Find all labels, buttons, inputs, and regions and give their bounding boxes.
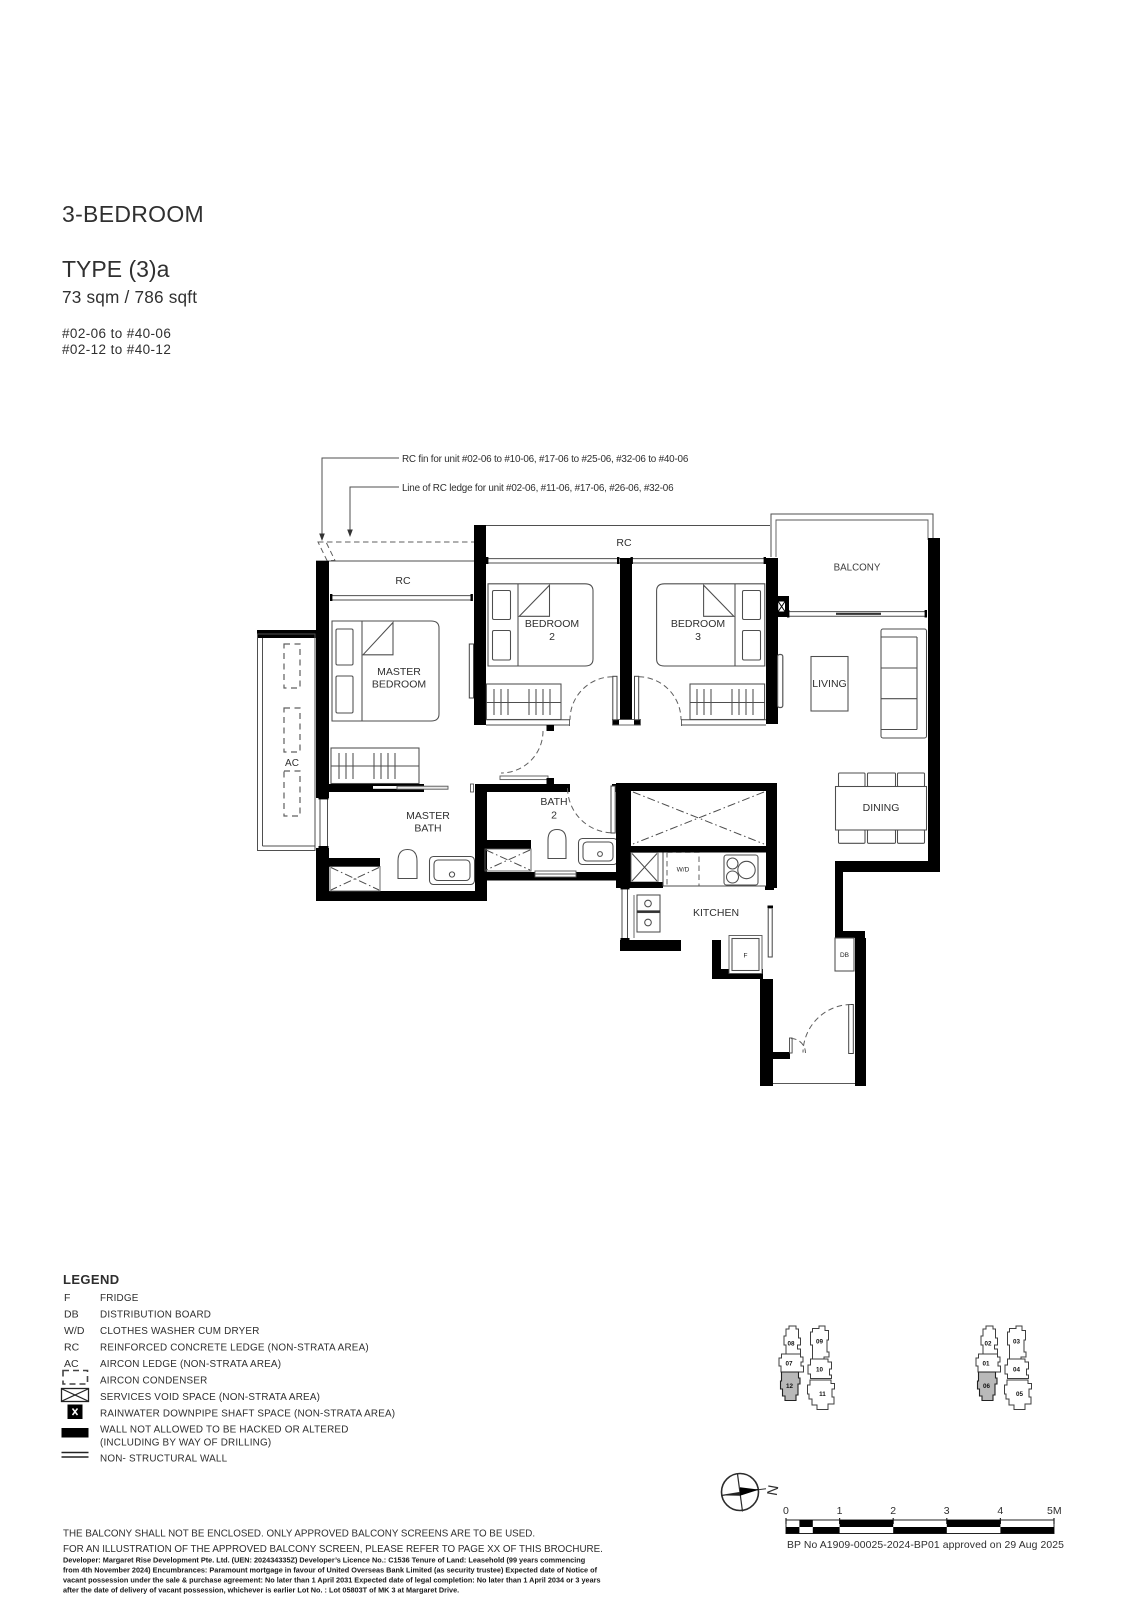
svg-text:F: F xyxy=(64,1292,70,1304)
svg-text:Developer: Margaret Rise Devel: Developer: Margaret Rise Development Pte… xyxy=(63,1556,585,1565)
svg-text:2: 2 xyxy=(551,810,557,822)
svg-text:DINING: DINING xyxy=(863,802,900,814)
svg-text:DB: DB xyxy=(840,952,849,959)
svg-text:2: 2 xyxy=(549,631,555,643)
svg-text:BEDROOM: BEDROOM xyxy=(372,679,426,691)
svg-text:0: 0 xyxy=(783,1505,789,1517)
svg-text:1: 1 xyxy=(837,1505,843,1517)
svg-text:SERVICES VOID SPACE (NON-STRAT: SERVICES VOID SPACE (NON-STRATA AREA) xyxy=(100,1392,320,1403)
svg-text:DISTRIBUTION BOARD: DISTRIBUTION BOARD xyxy=(100,1310,211,1321)
svg-text:THE BALCONY SHALL NOT BE ENCLO: THE BALCONY SHALL NOT BE ENCLOSED. ONLY … xyxy=(63,1529,535,1540)
svg-text:FRIDGE: FRIDGE xyxy=(100,1293,139,1304)
svg-text:RC: RC xyxy=(395,575,411,587)
svg-text:W/D: W/D xyxy=(64,1325,85,1337)
svg-text:BEDROOM: BEDROOM xyxy=(671,618,725,630)
svg-text:NON- STRUCTURAL WALL: NON- STRUCTURAL WALL xyxy=(100,1454,228,1465)
svg-text:N: N xyxy=(765,1484,783,1497)
svg-text:after the date of delivery of: after the date of delivery of vacant pos… xyxy=(63,1586,459,1595)
svg-text:11: 11 xyxy=(819,1391,826,1398)
svg-text:KITCHEN: KITCHEN xyxy=(693,907,739,919)
svg-text:BP No A1909-00025-2024-BP01 ap: BP No A1909-00025-2024-BP01 approved on … xyxy=(787,1540,1064,1551)
svg-text:07: 07 xyxy=(785,1361,793,1368)
svg-text:BALCONY: BALCONY xyxy=(834,563,881,574)
svg-text:DB: DB xyxy=(64,1309,79,1321)
svg-text:73 sqm / 786 sqft: 73 sqm / 786 sqft xyxy=(62,287,197,307)
svg-text:04: 04 xyxy=(1013,1367,1021,1374)
svg-text:F: F xyxy=(744,953,748,960)
svg-text:Line of RC ledge for unit #02-: Line of RC ledge for unit #02-06, #11-06… xyxy=(402,483,674,494)
svg-text:BATH: BATH xyxy=(540,796,567,808)
svg-text:TYPE (3)a: TYPE (3)a xyxy=(62,256,170,282)
svg-text:#02-12 to #40-12: #02-12 to #40-12 xyxy=(62,342,171,357)
svg-text:02: 02 xyxy=(984,1341,992,1348)
svg-text:2: 2 xyxy=(890,1505,896,1517)
svg-text:CLOTHES WASHER CUM DRYER: CLOTHES WASHER CUM DRYER xyxy=(100,1326,260,1337)
svg-text:#02-06 to #40-06: #02-06 to #40-06 xyxy=(62,326,171,341)
svg-text:MASTER: MASTER xyxy=(377,666,421,678)
svg-text:5M: 5M xyxy=(1047,1505,1062,1517)
svg-text:AIRCON CONDENSER: AIRCON CONDENSER xyxy=(100,1376,207,1387)
svg-text:(INCLUDING BY WAY OF DRILLING): (INCLUDING BY WAY OF DRILLING) xyxy=(100,1438,271,1449)
svg-text:REINFORCED CONCRETE LEDGE (NON: REINFORCED CONCRETE LEDGE (NON-STRATA AR… xyxy=(100,1343,369,1354)
svg-text:06: 06 xyxy=(983,1383,991,1390)
svg-text:03: 03 xyxy=(1013,1339,1021,1346)
svg-text:3: 3 xyxy=(695,631,701,643)
svg-text:RC fin for unit #02-06 to #10-: RC fin for unit #02-06 to #10-06, #17-06… xyxy=(402,454,689,465)
svg-text:08: 08 xyxy=(787,1341,795,1348)
svg-text:BATH: BATH xyxy=(414,823,441,835)
svg-text:01: 01 xyxy=(982,1361,990,1368)
svg-text:LEGEND: LEGEND xyxy=(63,1272,120,1287)
svg-text:LIVING: LIVING xyxy=(812,678,846,690)
svg-text:vacant possession under the sa: vacant possession under the sale & purch… xyxy=(63,1576,601,1585)
svg-text:3: 3 xyxy=(944,1505,950,1517)
svg-text:RC: RC xyxy=(64,1342,80,1354)
svg-text:RC: RC xyxy=(616,537,632,549)
svg-text:10: 10 xyxy=(816,1367,824,1374)
svg-text:MASTER: MASTER xyxy=(406,810,450,822)
svg-text:from 4th November 2024) Encum: from 4th November 2024) Encumbrances: Pa… xyxy=(63,1566,598,1575)
svg-text:09: 09 xyxy=(816,1339,824,1346)
svg-text:AC: AC xyxy=(285,758,299,769)
svg-text:4: 4 xyxy=(997,1505,1003,1517)
svg-text:FOR AN ILLUSTRATION OF THE APP: FOR AN ILLUSTRATION OF THE APPROVED BALC… xyxy=(63,1544,603,1555)
svg-text:AC: AC xyxy=(64,1358,79,1370)
svg-text:AIRCON LEDGE (NON-STRATA AREA): AIRCON LEDGE (NON-STRATA AREA) xyxy=(100,1359,281,1370)
svg-text:BEDROOM: BEDROOM xyxy=(525,618,579,630)
svg-text:W/D: W/D xyxy=(677,867,690,874)
svg-text:RAINWATER DOWNPIPE SHAFT SPACE: RAINWATER DOWNPIPE SHAFT SPACE (NON-STRA… xyxy=(100,1409,395,1420)
svg-text:12: 12 xyxy=(786,1383,794,1390)
svg-text:05: 05 xyxy=(1016,1391,1024,1398)
svg-text:WALL NOT ALLOWED TO BE HACKED: WALL NOT ALLOWED TO BE HACKED OR ALTERED xyxy=(100,1425,349,1436)
svg-text:3-BEDROOM: 3-BEDROOM xyxy=(62,201,204,227)
